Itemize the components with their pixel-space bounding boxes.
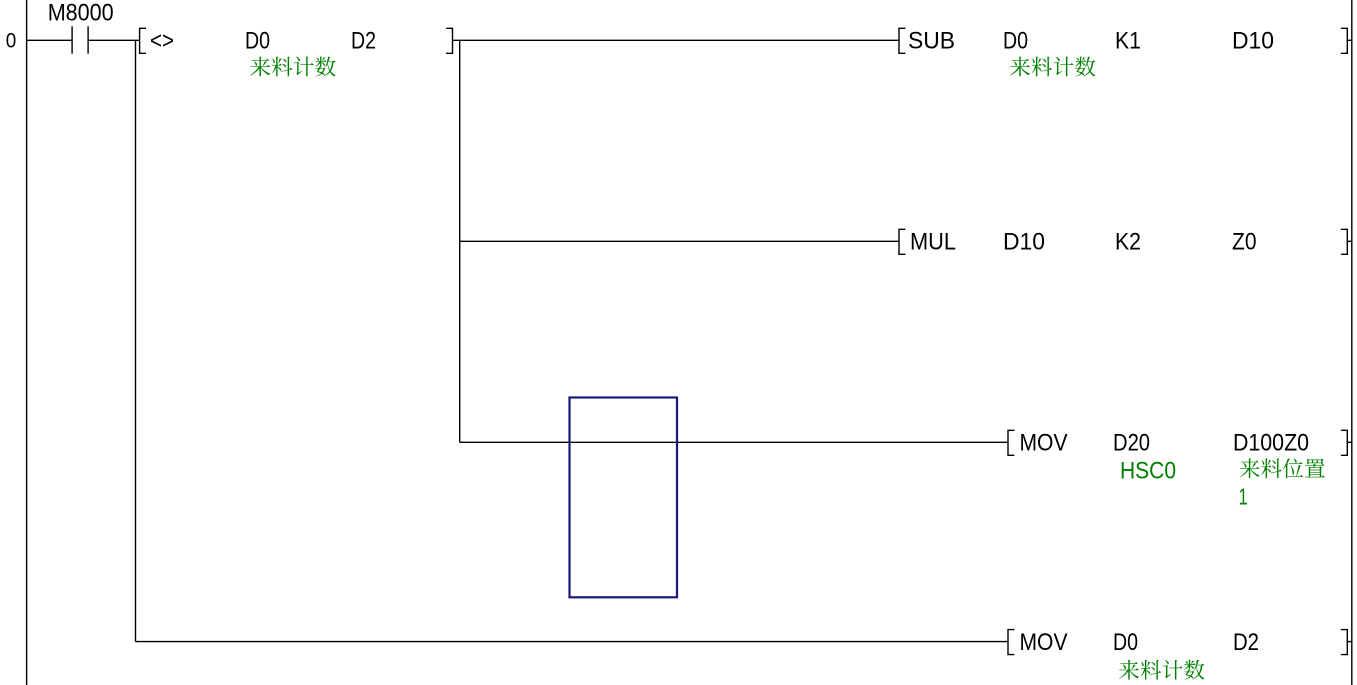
svg-text:D0: D0 [1113,629,1138,656]
svg-text:D2: D2 [351,28,376,55]
svg-text:D2: D2 [1233,629,1259,656]
svg-text:D0: D0 [245,28,270,55]
svg-text:D10: D10 [1232,28,1274,55]
svg-text:<>: <> [150,28,174,55]
svg-text:D0: D0 [1003,28,1028,55]
svg-text:D20: D20 [1113,430,1150,457]
svg-text:Z0: Z0 [1232,229,1257,256]
svg-text:M8000: M8000 [48,0,114,27]
svg-text:K1: K1 [1115,28,1141,55]
svg-text:HSC0: HSC0 [1120,458,1176,485]
svg-text:D10: D10 [1003,229,1045,256]
svg-text:MOV: MOV [1020,430,1068,457]
svg-text:MUL: MUL [910,229,956,256]
svg-text:K2: K2 [1115,229,1141,256]
svg-text:SUB: SUB [908,28,955,55]
svg-text:D100Z0: D100Z0 [1233,430,1309,457]
svg-text:MOV: MOV [1020,629,1068,656]
svg-text:1: 1 [1239,484,1248,510]
svg-text:0: 0 [6,29,17,53]
